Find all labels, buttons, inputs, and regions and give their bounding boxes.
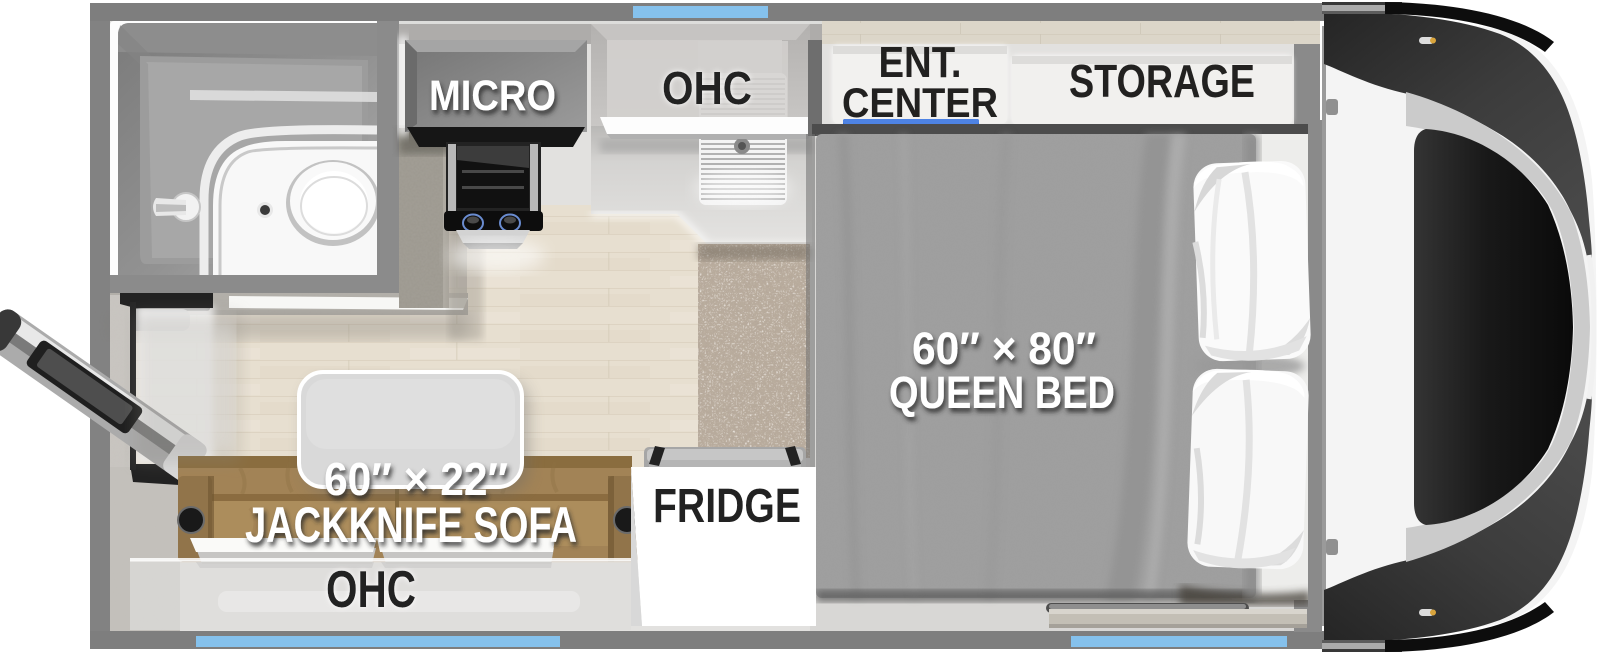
svg-text:MICRO: MICRO (429, 72, 556, 120)
svg-text:CENTER: CENTER (842, 79, 998, 126)
svg-text:FRIDGE: FRIDGE (653, 480, 801, 533)
svg-text:OHC: OHC (326, 561, 416, 619)
svg-text:OHC: OHC (662, 62, 752, 114)
svg-text:STORAGE: STORAGE (1069, 55, 1255, 107)
svg-text:QUEEN BED: QUEEN BED (889, 367, 1115, 418)
svg-text:JACKKNIFE SOFA: JACKKNIFE SOFA (245, 497, 577, 553)
